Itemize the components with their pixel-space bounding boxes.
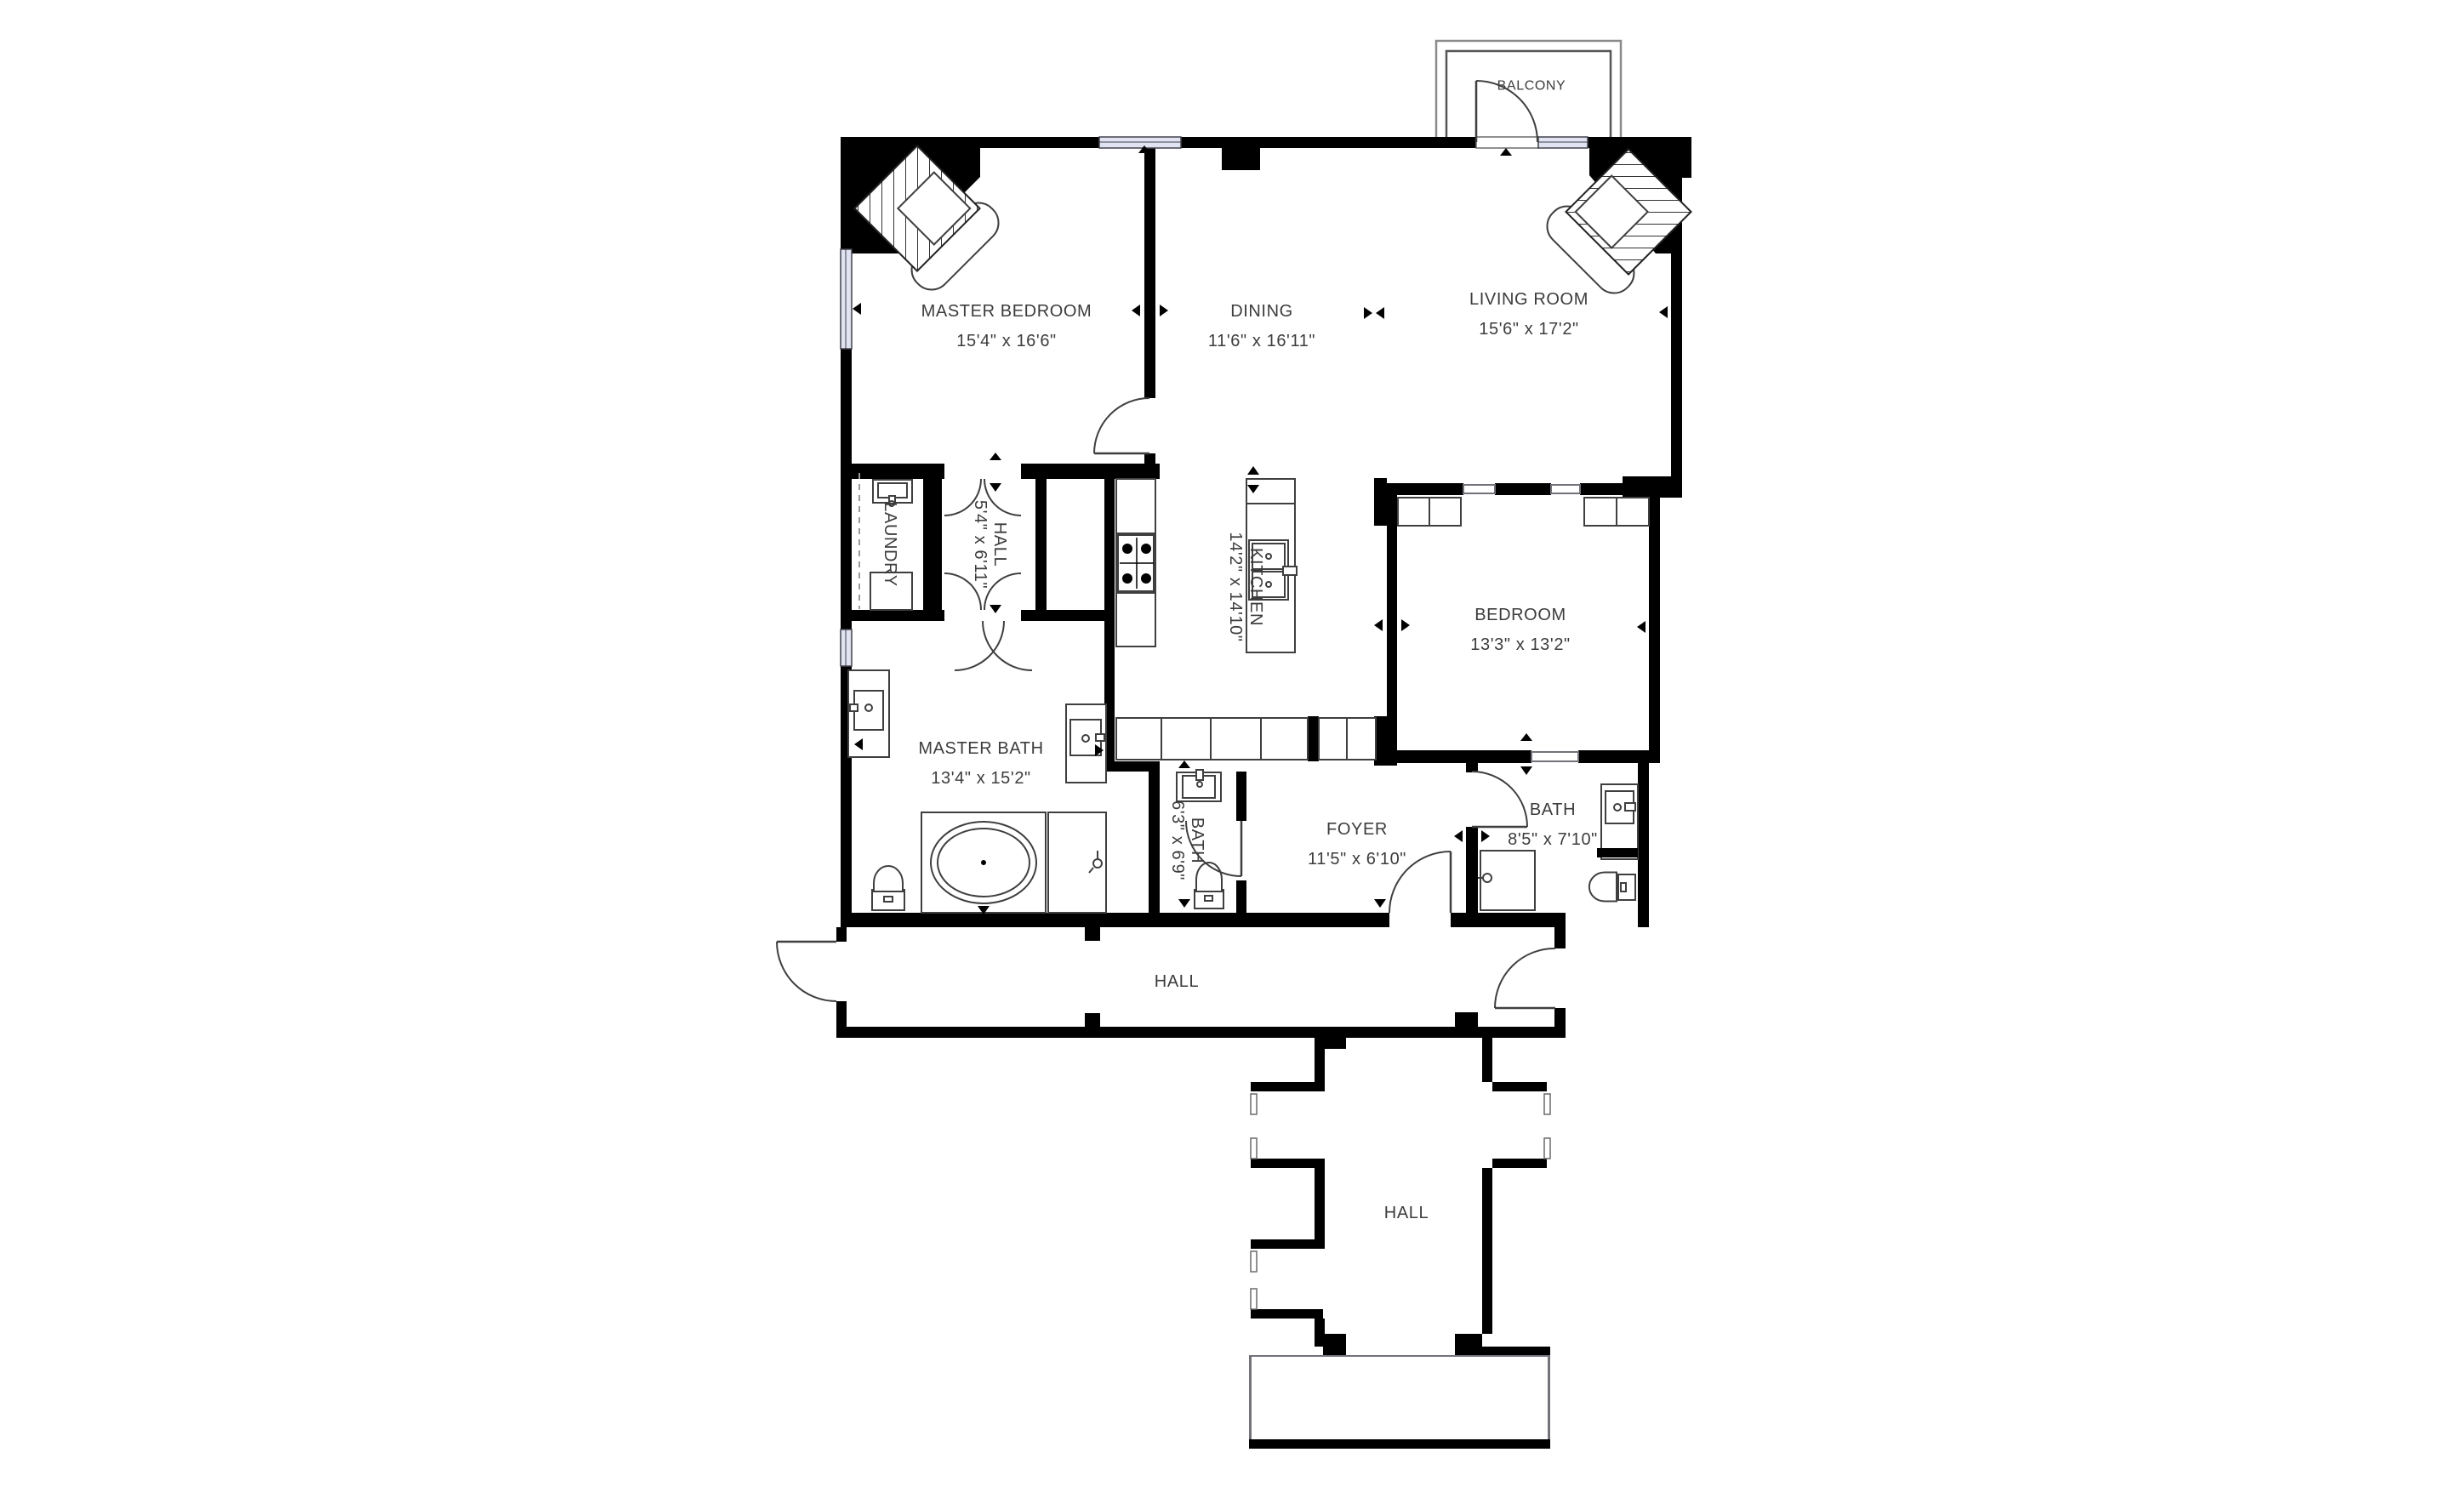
bath-vanity — [1601, 784, 1638, 859]
room-label-hall-lower: HALL — [1384, 1204, 1429, 1222]
window — [1099, 137, 1181, 148]
master-bath-vanity — [1066, 704, 1106, 783]
window — [1476, 137, 1538, 148]
room-label-hall-small: HALL — [990, 522, 1009, 567]
room-label-kitchen: KITCHEN — [1246, 548, 1265, 626]
room-label-hall-mid: HALL — [1155, 972, 1199, 991]
room-dims-living-room: 15'6" x 17'2" — [1479, 320, 1579, 339]
floor-plan-drawing: BALCONY MASTER BEDROOM 15'4" x 16'6" DIN… — [0, 0, 2464, 1498]
window — [1551, 485, 1580, 493]
bathtub-symbol — [921, 812, 1046, 913]
door-arc — [1094, 398, 1149, 453]
window — [841, 249, 852, 349]
closet — [1116, 718, 1308, 760]
toilet-symbol — [1195, 863, 1223, 908]
floor-plan: BALCONY MASTER BEDROOM 15'4" x 16'6" DIN… — [0, 0, 2464, 1498]
door-arc — [1495, 948, 1555, 1008]
window — [1463, 485, 1495, 493]
shower-symbol — [1478, 851, 1535, 910]
bath-sink-symbol — [1177, 770, 1221, 801]
stove-symbol — [1118, 535, 1154, 591]
room-dims-bedroom: 13'3" x 13'2" — [1470, 635, 1571, 654]
room-dims-bath-small: 6'3" x 6'9" — [1168, 800, 1187, 880]
corridor-door-jambs — [1251, 1094, 1550, 1309]
shower-symbol — [1048, 812, 1106, 913]
master-bath-vanity — [848, 670, 889, 757]
room-dims-master-bedroom: 15'4" x 16'6" — [956, 332, 1057, 350]
room-label-bedroom: BEDROOM — [1474, 606, 1566, 624]
room-label-dining: DINING — [1230, 302, 1293, 321]
closet — [1319, 718, 1376, 760]
room-label-master-bedroom: MASTER BEDROOM — [921, 302, 1092, 321]
window — [1538, 137, 1588, 148]
door-arc — [777, 942, 836, 1001]
window — [841, 629, 852, 666]
window — [1531, 752, 1578, 761]
room-label-living-room: LIVING ROOM — [1469, 290, 1588, 309]
room-dims-bath: 8'5" x 7'10" — [1508, 830, 1598, 849]
room-dims-master-bath: 13'4" x 15'2" — [931, 769, 1031, 788]
room-dims-hall-small: 5'4" x 6'11" — [971, 500, 990, 589]
room-label-bath: BATH — [1530, 800, 1576, 819]
wall-stub — [1597, 848, 1638, 857]
door-arc — [955, 621, 1032, 670]
toilet-symbol — [872, 866, 904, 910]
room-label-bath-small: BATH — [1188, 817, 1206, 863]
closet — [1398, 498, 1461, 526]
room-label-master-bath: MASTER BATH — [918, 739, 1043, 758]
room-dims-foyer: 11'5" x 6'10" — [1308, 850, 1406, 869]
room-label-balcony: BALCONY — [1497, 79, 1566, 94]
toilet-symbol — [1589, 873, 1635, 902]
room-dims-kitchen: 14'2" x 14'10" — [1226, 532, 1245, 641]
room-label-foyer: FOYER — [1326, 820, 1388, 839]
closet — [1584, 498, 1649, 526]
lower-lobby-structure — [1249, 1355, 1550, 1449]
room-dims-dining: 11'6" x 16'11" — [1208, 332, 1315, 350]
room-label-laundry: LAUNDRY — [881, 502, 899, 586]
door-arc — [1472, 772, 1527, 827]
